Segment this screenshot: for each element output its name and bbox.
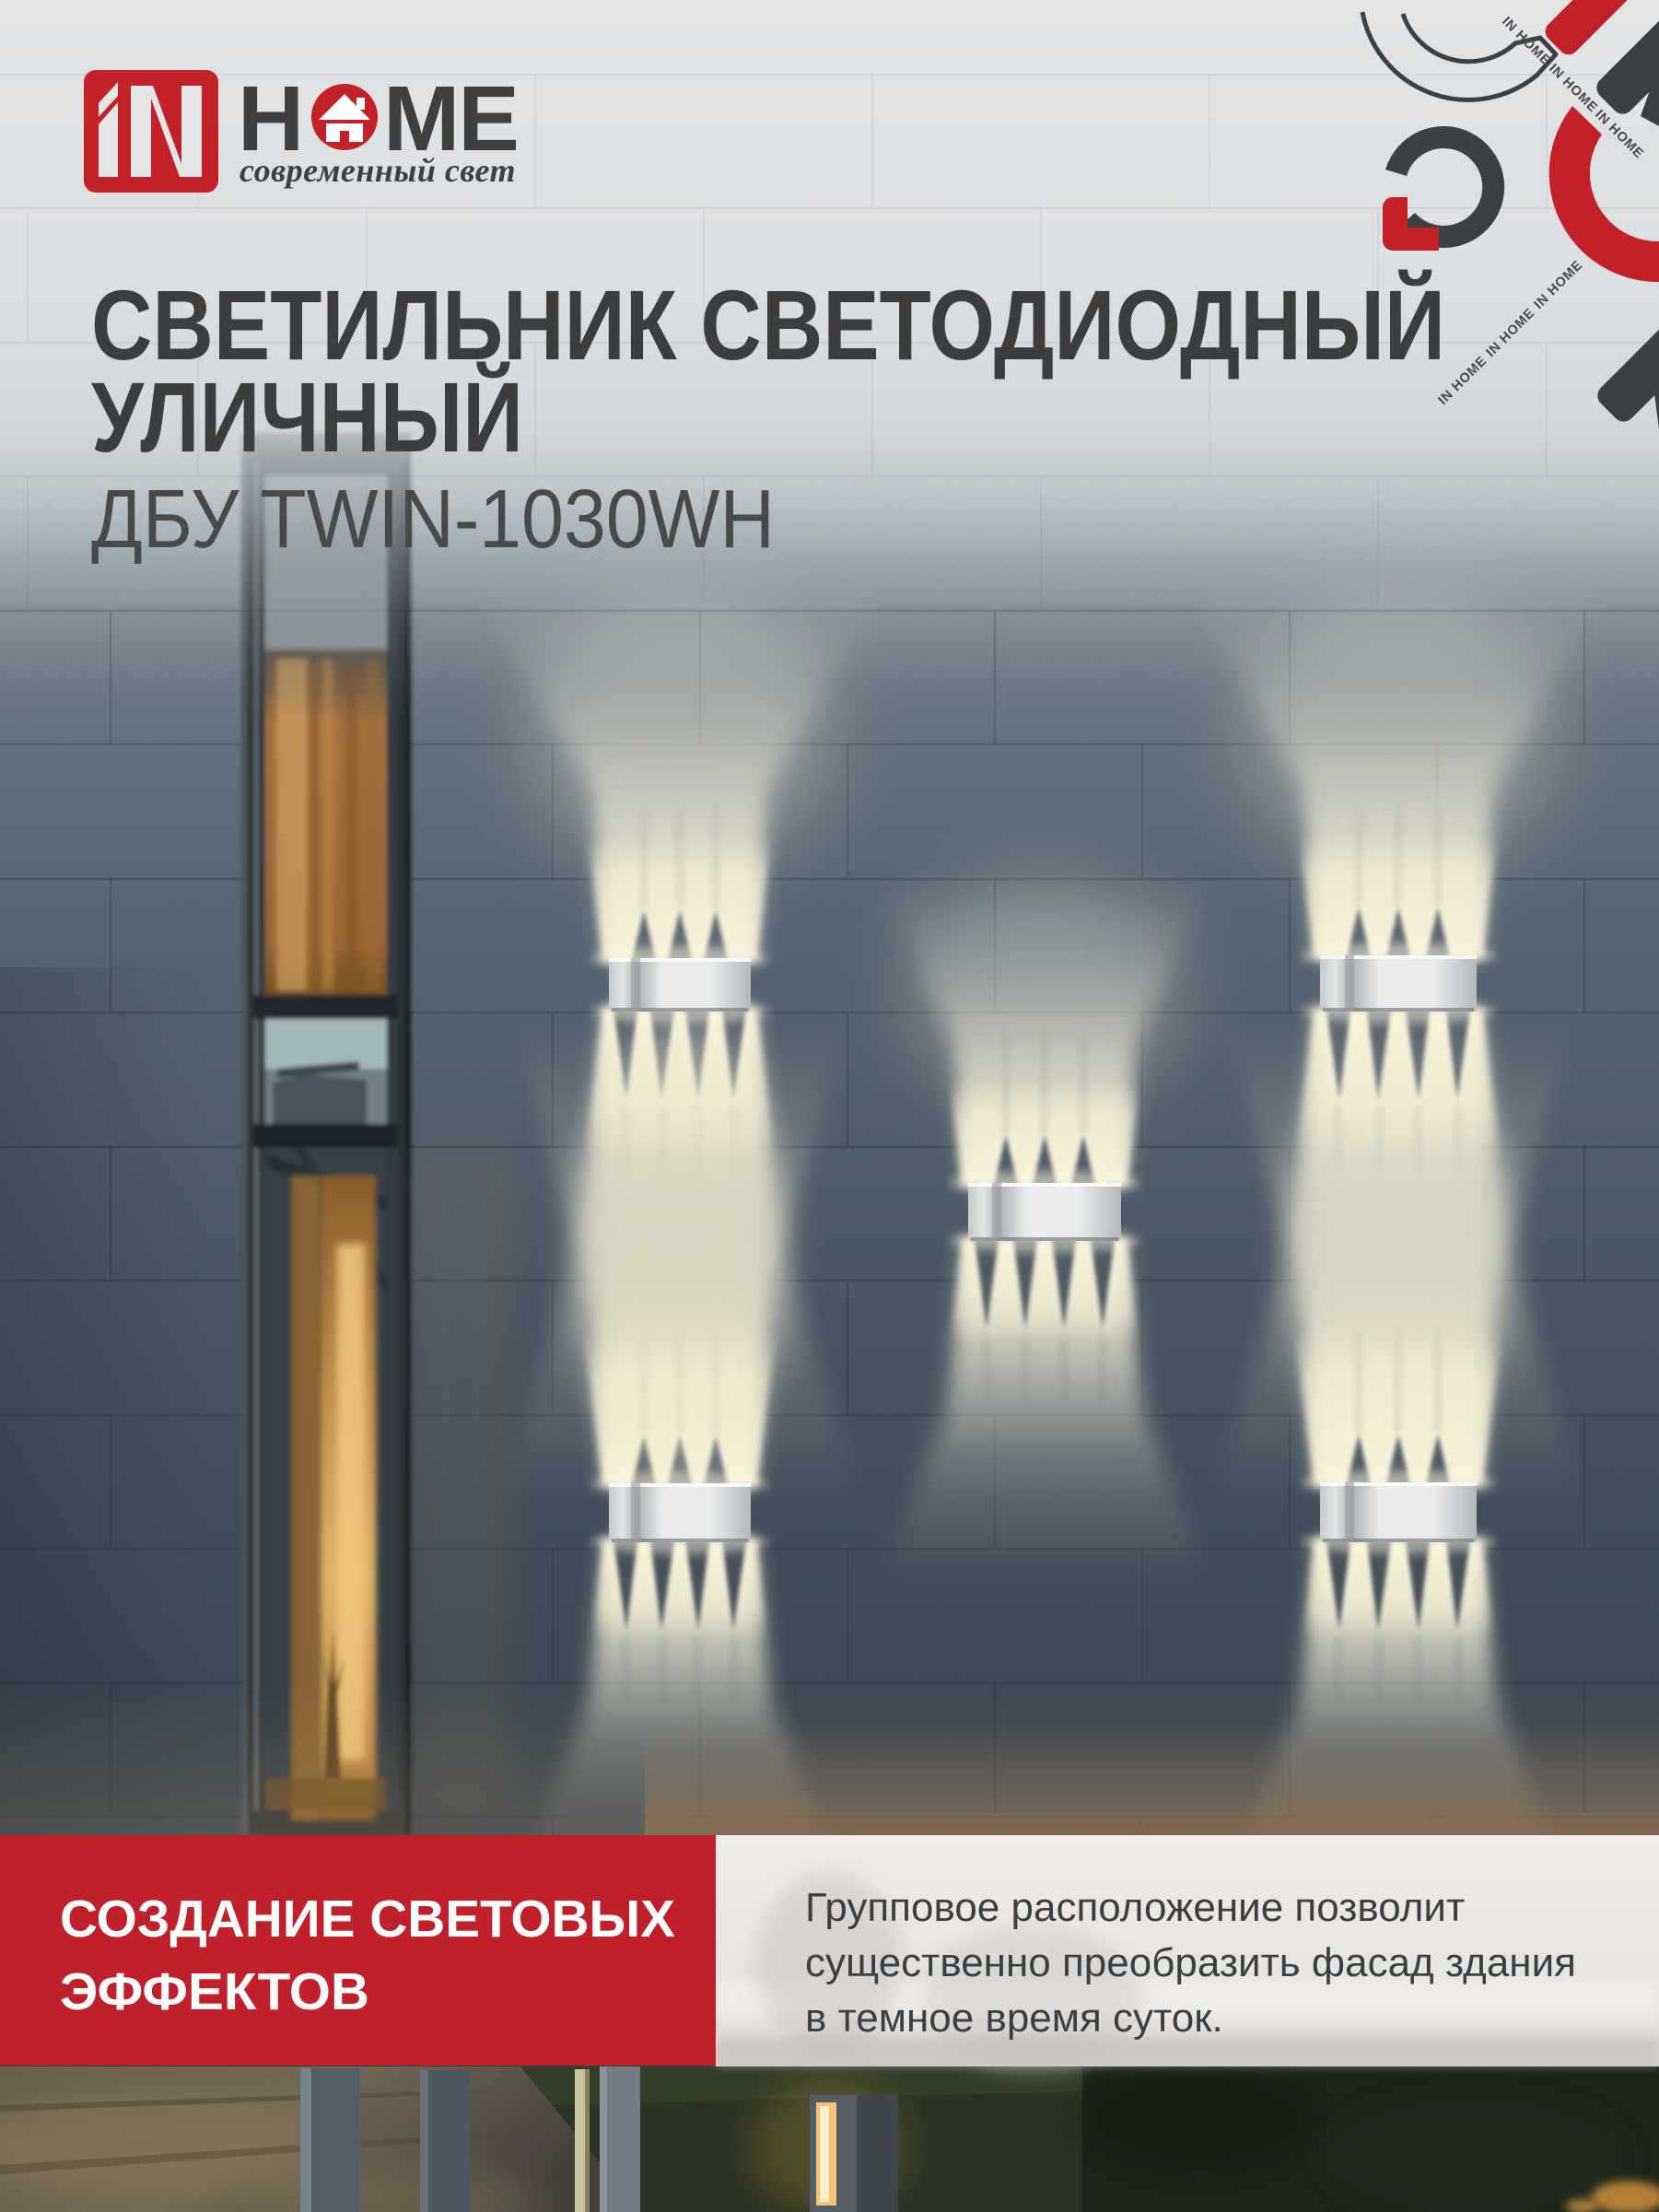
svg-text:в темное время суток.: в темное время суток. bbox=[805, 1995, 1223, 2041]
svg-text:УЛИЧНЫЙ: УЛИЧНЫЙ bbox=[91, 361, 523, 473]
svg-text:современный свет: современный свет bbox=[240, 152, 516, 189]
svg-text:существенно преобразить фасад: существенно преобразить фасад здания bbox=[805, 1940, 1576, 1985]
svg-text:Групповое расположение позволи: Групповое расположение позволит bbox=[805, 1885, 1465, 1930]
svg-text:ЭФФЕКТОВ: ЭФФЕКТОВ bbox=[60, 1962, 369, 2021]
svg-text:ДБУ TWIN-1030WH: ДБУ TWIN-1030WH bbox=[91, 474, 775, 566]
svg-text:СОЗДАНИЕ СВЕТОВЫХ: СОЗДАНИЕ СВЕТОВЫХ bbox=[60, 1890, 675, 1949]
